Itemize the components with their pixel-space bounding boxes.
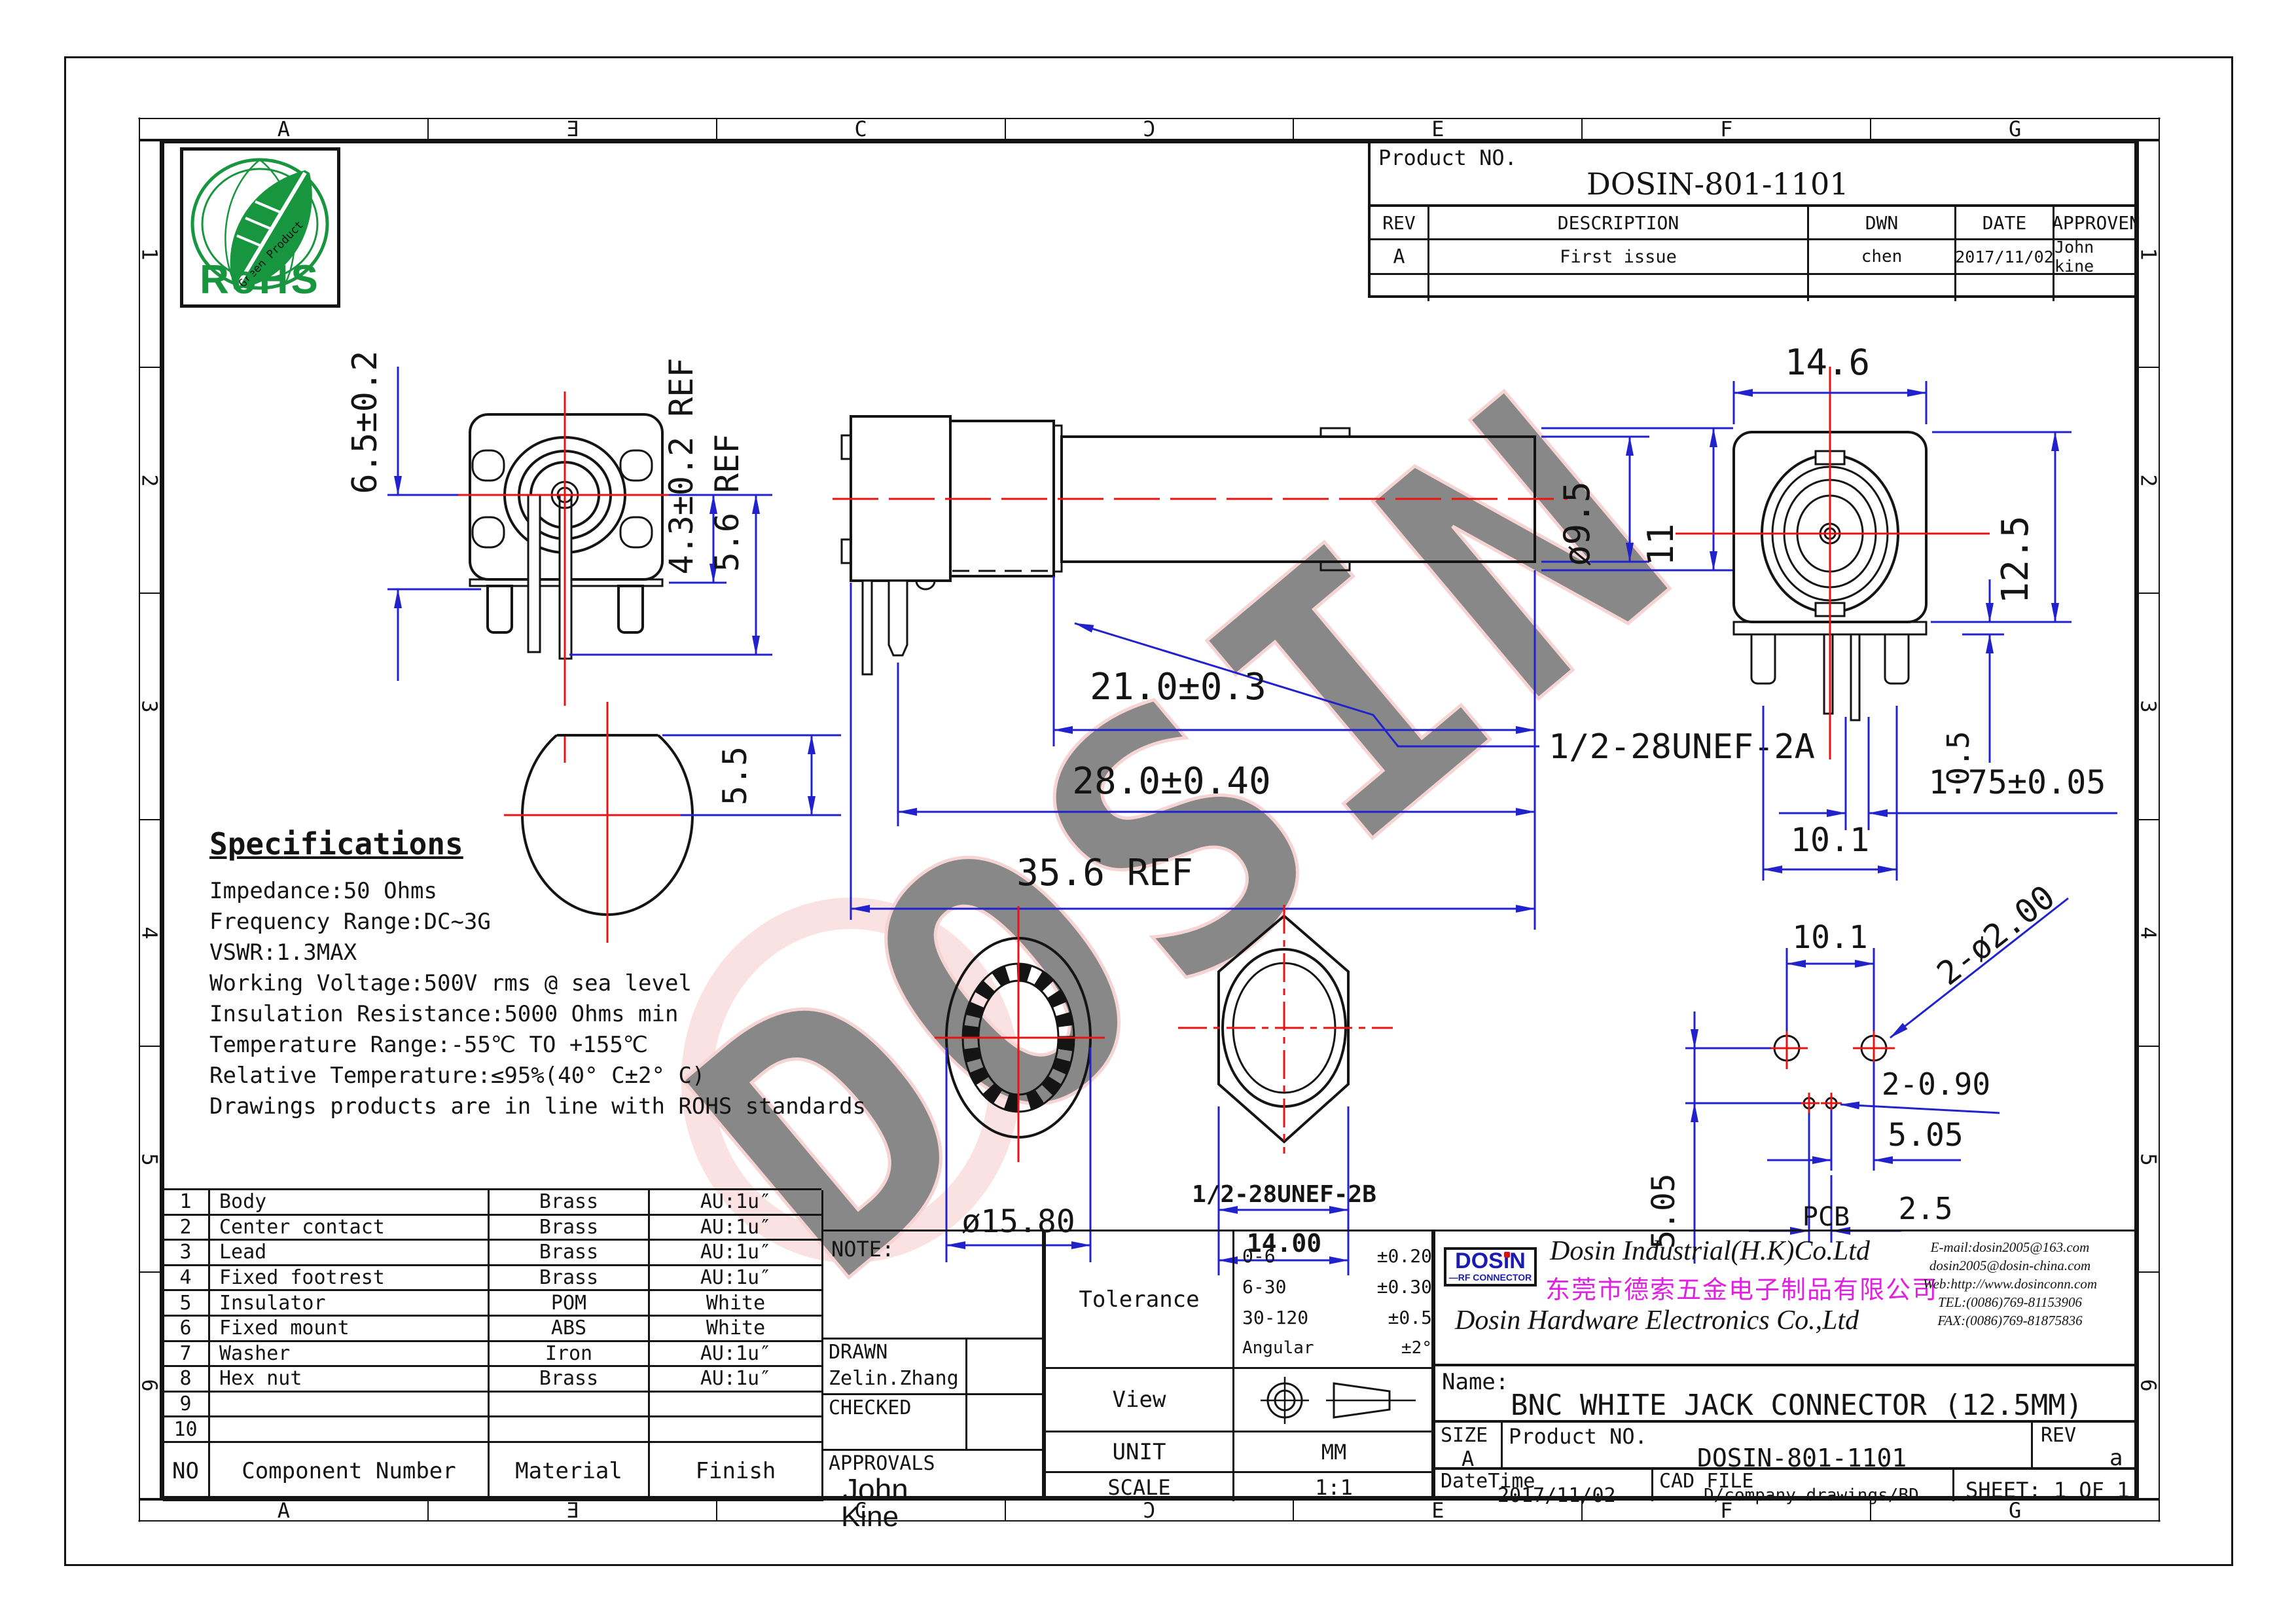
company-name-en1: Dosin Industrial(H.K)Co.Ltd xyxy=(1550,1235,1870,1267)
size-label: SIZE xyxy=(1441,1424,1488,1447)
datetime-value: 2017/11/02 xyxy=(1498,1484,1616,1507)
product-no-value: DOSIN-801-1101 xyxy=(1587,166,1848,202)
view-label: View xyxy=(1046,1369,1232,1431)
unit-label: UNIT xyxy=(1046,1432,1232,1471)
name-label: Name: xyxy=(1442,1369,1509,1395)
grid-number: 5 xyxy=(140,1047,160,1273)
part-component: Hex nut xyxy=(210,1367,490,1393)
specifications: Specifications Impedance:50 Ohms Frequen… xyxy=(209,826,897,1122)
grid-letter: Ɔ xyxy=(1006,1501,1295,1520)
projection-symbol-icon xyxy=(1255,1377,1419,1424)
grid-band-top: A Ǝ C Ɔ E F G xyxy=(139,118,2160,140)
part-component: Washer xyxy=(210,1342,490,1368)
grid-band-left: 1 2 3 4 5 6 xyxy=(139,140,161,1499)
part-finish xyxy=(650,1393,823,1418)
scale-label: SCALE xyxy=(1046,1473,1232,1501)
note-label: NOTE: xyxy=(831,1237,894,1262)
part-no: 6 xyxy=(163,1317,210,1342)
part-component: Lead xyxy=(210,1241,490,1266)
tol-value: ±2° xyxy=(1401,1333,1432,1364)
company-name-en2: Dosin Hardware Electronics Co.,Ltd xyxy=(1455,1305,1859,1336)
description-header: DESCRIPTION xyxy=(1429,207,1809,238)
spec-line: Drawings products are in line with ROHS … xyxy=(209,1091,897,1122)
part-component: Center contact xyxy=(210,1216,490,1241)
part-finish: AU:1u″ xyxy=(650,1342,823,1368)
part-no: 10 xyxy=(163,1417,210,1443)
part-finish xyxy=(650,1417,823,1443)
tolerance-label: Tolerance xyxy=(1046,1231,1232,1367)
datetime-row: DateTime 2017/11/02 CAD FILE D/company d… xyxy=(1435,1467,2138,1501)
tol-value: ±0.5 xyxy=(1388,1302,1432,1333)
dosin-logo-sub: —RF CONNECTOR xyxy=(1446,1272,1534,1283)
part-material xyxy=(490,1393,650,1418)
rev-cell: A xyxy=(1371,240,1429,273)
spec-line: Frequency Range:DC~3G xyxy=(209,907,897,938)
tol-value: ±0.30 xyxy=(1377,1271,1432,1302)
scale-value: 1:1 xyxy=(1232,1473,1435,1501)
part-component: Fixed footrest xyxy=(210,1266,490,1292)
part-component xyxy=(210,1417,490,1443)
part-finish: AU:1u″ xyxy=(650,1367,823,1393)
approver-last-overflow: Kine xyxy=(841,1501,899,1533)
grid-number: 2 xyxy=(2139,368,2159,594)
part-material xyxy=(490,1417,650,1443)
product-name: BNC WHITE JACK CONNECTOR (12.5MM) xyxy=(1511,1389,2083,1422)
grid-letter: Ǝ xyxy=(429,119,717,139)
grid-number: 4 xyxy=(2139,820,2159,1047)
approven-cell: John kine xyxy=(2054,240,2138,273)
parts-header-material: Material xyxy=(490,1443,650,1501)
grid-number: 4 xyxy=(140,820,160,1047)
tol-value: ±0.20 xyxy=(1377,1241,1432,1271)
grid-number: 1 xyxy=(2139,141,2159,368)
dosin-logo-text: DOSiN xyxy=(1446,1250,1534,1272)
part-material: ABS xyxy=(490,1317,650,1342)
part-no: 7 xyxy=(163,1342,210,1368)
grid-letter: F xyxy=(1583,119,1871,139)
tolerance-block: Tolerance 0-6 ±0.20 6-30 ±0.30 30-120 ±0… xyxy=(1044,1230,1433,1499)
part-component xyxy=(210,1393,490,1418)
rev-label: REV xyxy=(2041,1424,2076,1447)
unit-value: MM xyxy=(1232,1432,1435,1471)
parts-header-no: NO xyxy=(163,1443,210,1501)
description-cell: First issue xyxy=(1429,240,1809,273)
tol-range: 6-30 xyxy=(1242,1271,1286,1302)
grid-number: 3 xyxy=(2139,594,2159,820)
grid-number: 5 xyxy=(2139,1047,2159,1273)
part-component: Fixed mount xyxy=(210,1317,490,1342)
grid-number: 1 xyxy=(140,141,160,368)
date-cell: 2017/11/02 xyxy=(1956,240,2054,273)
spec-line: Insulation Resistance:5000 Ohms min xyxy=(209,999,897,1030)
part-no: 8 xyxy=(163,1367,210,1393)
parts-table: 1 Body Brass AU:1u″ 2 Center contact Bra… xyxy=(161,1188,821,1499)
grid-letter: A xyxy=(140,119,429,139)
dosin-logo-red-dot xyxy=(1504,1252,1510,1258)
part-no: 9 xyxy=(163,1393,210,1418)
dosin-logo: DOSiN —RF CONNECTOR xyxy=(1444,1247,1537,1286)
rohs-title: RoHS xyxy=(183,257,337,303)
specs-title: Specifications xyxy=(209,826,897,862)
grid-letter: Ǝ xyxy=(429,1501,717,1520)
part-finish: White xyxy=(650,1291,823,1317)
size-row: SIZE A Product NO. DOSIN-801-1101 REV a xyxy=(1435,1420,2138,1467)
part-finish: White xyxy=(650,1317,823,1342)
grid-letter: G xyxy=(1871,119,2159,139)
grid-number: 6 xyxy=(140,1273,160,1498)
company-row: DOSiN —RF CONNECTOR Dosin Industrial(H.K… xyxy=(1435,1231,2138,1364)
part-no: 2 xyxy=(163,1216,210,1241)
note-block: NOTE: DRAWN Zelin.Zhang CHECKED APPROVAL… xyxy=(821,1230,1044,1499)
company-contact: E-mail:dosin2005@163.com xyxy=(1887,1238,2133,1256)
part-no: 4 xyxy=(163,1266,210,1292)
revision-table: Product NO. DOSIN-801-1101 REV DESCRIPTI… xyxy=(1368,140,2138,298)
spec-line: Temperature Range:-55℃ TO +155℃ xyxy=(209,1030,897,1061)
company-contact: FAX:(0086)769-81875836 xyxy=(1887,1311,2133,1330)
part-material: Iron xyxy=(490,1342,650,1368)
parts-header-component: Component Number xyxy=(210,1443,490,1501)
rev-header: REV xyxy=(1371,207,1429,238)
cadfile-value: D/company drawings/BD xyxy=(1704,1486,1919,1505)
part-material: Brass xyxy=(490,1266,650,1292)
company-contact: TEL:(0086)769-81153906 xyxy=(1887,1293,2133,1311)
spec-line: Relative Temperature:≤95%(40° C±2° C) xyxy=(209,1061,897,1091)
part-no: 1 xyxy=(163,1190,210,1216)
grid-number: 2 xyxy=(140,368,160,594)
part-material: Brass xyxy=(490,1367,650,1393)
title-block: DOSiN —RF CONNECTOR Dosin Industrial(H.K… xyxy=(1433,1230,2138,1499)
grid-letter: Ɔ xyxy=(1006,119,1295,139)
sheet-value: SHEET: 1 OF 1 xyxy=(1965,1478,2129,1503)
drawn-by: Zelin.Zhang xyxy=(829,1367,959,1390)
tol-range: Angular xyxy=(1242,1333,1314,1364)
grid-band-right: 1 2 3 4 5 6 xyxy=(2138,140,2160,1499)
date-header: DATE xyxy=(1956,207,2054,238)
part-finish: AU:1u″ xyxy=(650,1266,823,1292)
approven-header: APPROVEN xyxy=(2054,207,2138,238)
part-no: 5 xyxy=(163,1291,210,1317)
grid-number: 6 xyxy=(2139,1273,2159,1498)
part-finish: AU:1u″ xyxy=(650,1241,823,1266)
company-contact: dosin2005@dosin-china.com xyxy=(1887,1256,2133,1275)
dwn-cell: chen xyxy=(1809,240,1956,273)
part-material: Brass xyxy=(490,1216,650,1241)
company-name-cn: 东莞市德索五金电子制品有限公司 xyxy=(1545,1269,1938,1305)
part-material: Brass xyxy=(490,1241,650,1266)
part-component: Body xyxy=(210,1190,490,1216)
company-contact: Web:http://www.dosinconn.com xyxy=(1887,1275,2133,1293)
title-product-label: Product NO. xyxy=(1509,1424,1647,1449)
rohs-logo: Green Product RoHS xyxy=(180,147,340,308)
part-component: Insulator xyxy=(210,1291,490,1317)
grid-letter: A xyxy=(140,1501,429,1520)
spec-line: VSWR:1.3MAX xyxy=(209,938,897,968)
grid-letter: C xyxy=(717,119,1006,139)
part-finish: AU:1u″ xyxy=(650,1216,823,1241)
part-material: POM xyxy=(490,1291,650,1317)
tol-range: 0-6 xyxy=(1242,1241,1276,1271)
part-material: Brass xyxy=(490,1190,650,1216)
part-no: 3 xyxy=(163,1241,210,1266)
checked-label: CHECKED xyxy=(829,1396,911,1419)
part-finish: AU:1u″ xyxy=(650,1190,823,1216)
dwn-header: DWN xyxy=(1809,207,1956,238)
product-no-label: Product NO. xyxy=(1378,145,1517,170)
grid-number: 3 xyxy=(140,594,160,820)
spec-line: Impedance:50 Ohms xyxy=(209,876,897,907)
parts-header-finish: Finish xyxy=(650,1443,823,1501)
spec-line: Working Voltage:500V rms @ sea level xyxy=(209,968,897,999)
tol-range: 30-120 xyxy=(1242,1302,1308,1333)
grid-letter: E xyxy=(1294,119,1583,139)
drawn-label: DRAWN xyxy=(829,1341,888,1364)
name-row: Name: BNC WHITE JACK CONNECTOR (12.5MM) xyxy=(1435,1364,2138,1420)
